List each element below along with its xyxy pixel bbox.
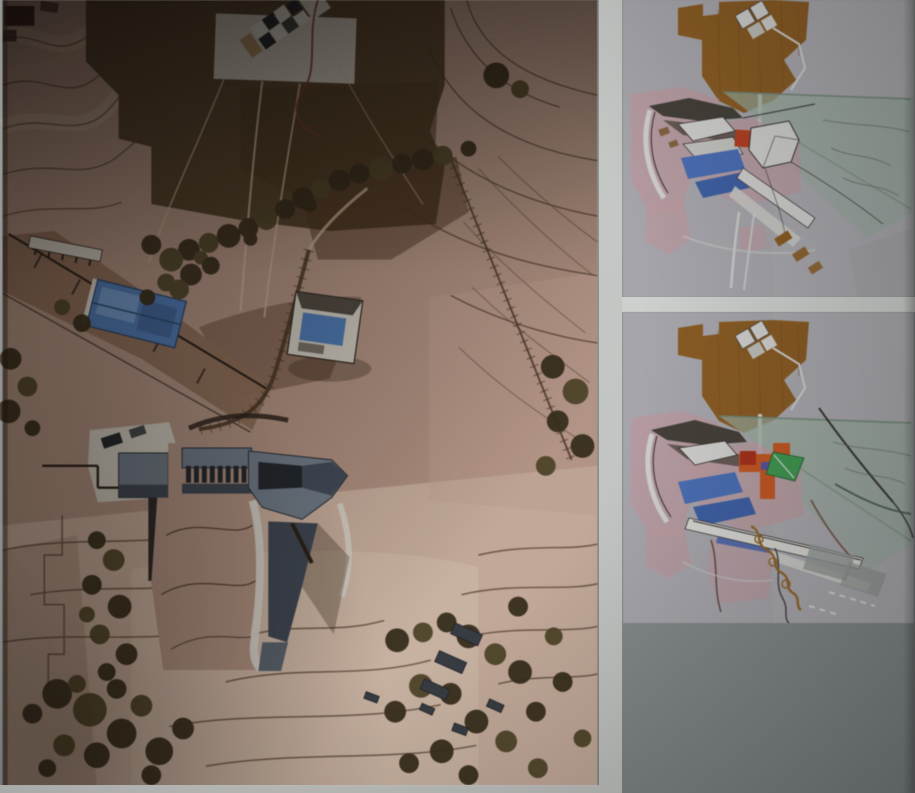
site-model-photo <box>0 0 600 786</box>
presentation-board <box>0 0 915 793</box>
photo-bottom-mat <box>0 785 600 793</box>
masterplan-diagram-top <box>622 0 915 297</box>
mat-strip-horizontal <box>622 297 915 312</box>
photo-shading <box>3 0 598 786</box>
masterplan-diagram-bottom <box>622 312 915 623</box>
mat-strip-vertical <box>599 0 622 793</box>
